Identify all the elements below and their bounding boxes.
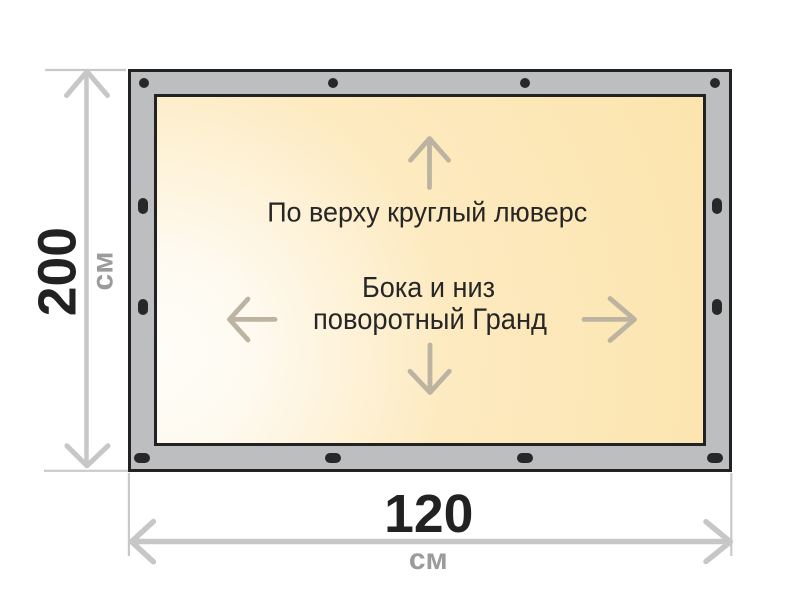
svg-text:200: 200 — [28, 227, 87, 316]
svg-text:см: см — [87, 252, 120, 291]
svg-text:см: см — [409, 543, 448, 576]
svg-text:Бока и низ: Бока и низ — [362, 272, 495, 304]
svg-text:поворотный Гранд: поворотный Гранд — [313, 303, 547, 336]
svg-text:По верху круглый люверс: По верху круглый люверс — [267, 197, 587, 228]
svg-text:120: 120 — [384, 485, 473, 544]
